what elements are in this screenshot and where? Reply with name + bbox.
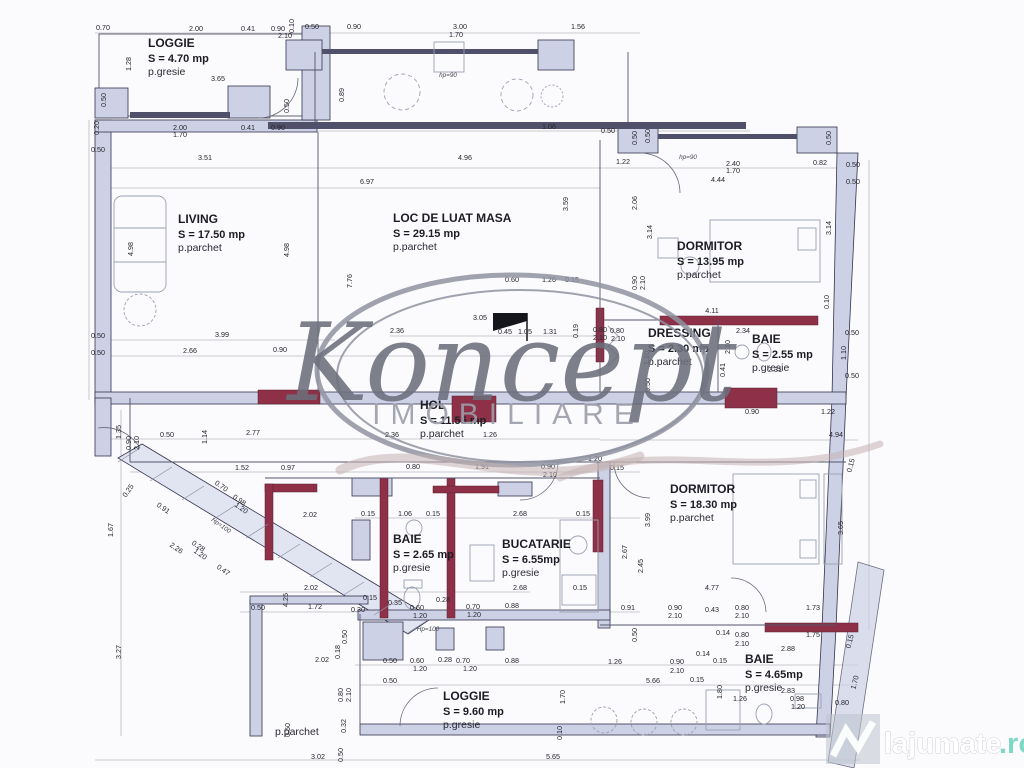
dimension-label: 0.80: [835, 698, 849, 707]
dimension-label: 2.10: [735, 611, 749, 620]
room-area-label: S = 4.65mp: [745, 669, 803, 681]
dimension-label: 3.65: [211, 74, 225, 83]
dimension-label: 0.50: [630, 628, 639, 642]
room-floor-label: p.gresie: [745, 682, 783, 694]
room-floor-label: p.parchet: [677, 269, 721, 281]
dimension-label: 1.26: [608, 657, 622, 666]
dimension-label: 0.50: [630, 131, 639, 145]
sofa: [114, 196, 166, 292]
terrace-table: [501, 79, 533, 111]
agency-watermark: Koncept IMOBILIARE: [285, 275, 880, 478]
dimension-label: 0.70: [96, 23, 110, 32]
dimension-label: 0.30: [351, 605, 365, 614]
dimension-label: 7.76: [345, 274, 354, 288]
dimension-label: 0.90: [271, 123, 285, 132]
dimension-label: 2.67: [620, 545, 629, 559]
dimension-label: 0.50: [383, 676, 397, 685]
dimension-label: 3.51: [198, 153, 212, 162]
dimension-label: 0.41: [241, 123, 255, 132]
dimension-label: 0.50: [643, 129, 652, 143]
dimension-label: 1.72: [308, 602, 322, 611]
dimension-label: 0.80: [406, 462, 420, 471]
sink: [735, 345, 749, 359]
dimension-label: hp=90: [439, 72, 457, 79]
dimension-label: 2.68: [513, 583, 527, 592]
room-area-label: S = 6.55mp: [502, 554, 560, 566]
dimension-label: 1.35: [114, 425, 123, 439]
room-area-label: S = 2.55 mp: [752, 349, 813, 361]
dimension-label: 0.50: [846, 177, 860, 186]
dimension-label: 4.44: [711, 175, 725, 184]
room-floor-label: p.gresie: [443, 719, 481, 731]
dimension-label: 2.10: [132, 436, 141, 450]
floorplan-svg: 0.702.000.410.902.100.100.500.903.001.70…: [0, 0, 1024, 768]
dimension-label: 0.28: [438, 655, 452, 664]
room-area-label: S = 29.15 mp: [393, 228, 460, 240]
dimension-label: 1.20: [463, 664, 477, 673]
plant: [124, 294, 156, 326]
dimension-label: 1.28: [124, 57, 133, 71]
dimension-label: 2.10: [670, 666, 684, 675]
dimension-label: 2.88: [781, 644, 795, 653]
dimension-label: 0.50: [160, 430, 174, 439]
dimension-label: 4.25: [281, 593, 290, 607]
dimension-label: 3.65: [836, 521, 845, 535]
dimension-label: 0.50: [282, 99, 291, 113]
dimension-label: 1.20: [413, 611, 427, 620]
dimension-label: 3.14: [645, 225, 654, 239]
dimension-label: 0.91: [155, 500, 172, 515]
room-floor-label: p.parchet: [178, 242, 222, 254]
toilet: [756, 704, 772, 724]
dimension-label: 0.15: [713, 656, 727, 665]
dimension-label: 5.66: [646, 676, 660, 685]
dimension-label: 0.50: [340, 630, 349, 644]
dimension-label: 1.52: [235, 463, 249, 472]
dimension-label: 0.10: [555, 726, 564, 740]
dimension-label: 2.66: [183, 346, 197, 355]
dimension-label: 1.70: [449, 30, 463, 39]
dimension-label: 1.22: [616, 157, 630, 166]
dimension-label: 2.00: [189, 24, 203, 33]
dimension-label: 0.15: [690, 675, 704, 684]
dimension-label: 3.02: [311, 752, 325, 761]
dimension-label: 0.15: [426, 509, 440, 518]
kitchen-counter: [560, 520, 598, 612]
dimension-label: 0.88: [505, 656, 519, 665]
dimension-label: 0.50: [91, 145, 105, 154]
dimension-label: 1.75: [806, 630, 820, 639]
dimension-label: 0.41: [241, 24, 255, 33]
dimension-label: 3.99: [215, 330, 229, 339]
site-tld-text: .ro: [999, 728, 1024, 760]
room-area-label: S = 9.60 mp: [443, 706, 504, 718]
dimension-label: 0.90: [670, 657, 684, 666]
dimension-label: 1.70: [558, 690, 567, 704]
dimension-label: 1.73: [806, 603, 820, 612]
dimension-label: 0.15: [361, 509, 375, 518]
plant: [541, 85, 563, 107]
dimension-label: 2.10: [668, 611, 682, 620]
dimension-label: 4.96: [458, 153, 472, 162]
room-area-label: S = 17.50 mp: [178, 229, 245, 241]
dimension-label: 1.14: [200, 430, 209, 444]
dimension-label: 2.26: [168, 540, 185, 555]
room-name-label: LOGGIE: [443, 689, 490, 703]
dimension-label: 0.15: [363, 593, 377, 602]
dimension-label: 0.32: [339, 719, 348, 733]
dimension-label: 0.89: [337, 88, 346, 102]
dimension-label: 0.15: [576, 509, 590, 518]
dimension-label: 1.70: [726, 166, 740, 175]
dimension-label: 0.50: [845, 328, 859, 337]
dimension-label: 0.10: [287, 19, 296, 33]
dimension-label: Hp=100: [417, 626, 440, 633]
room-name-label: BAIE: [745, 652, 774, 666]
room-area-label: S = 18.30 mp: [670, 499, 737, 511]
dimension-label: 1.70: [173, 130, 187, 139]
site-name-text: lajumate: [884, 728, 1002, 760]
room-area-label: S = 4.70 mp: [148, 53, 209, 65]
floor-plan-scan: 0.702.000.410.902.100.100.500.903.001.70…: [0, 0, 1024, 768]
dimension-label: 0.50: [336, 748, 345, 762]
dimension-label: 1.20: [413, 664, 427, 673]
dimension-label: 0.15: [844, 457, 856, 473]
dimension-label: 0.15: [573, 583, 587, 592]
dimension-label: 4.77: [705, 583, 719, 592]
table: [434, 42, 464, 72]
dimension-label: 4.98: [282, 243, 291, 257]
dimension-label: 2.02: [315, 655, 329, 664]
dimension-label: 3.14: [824, 221, 833, 235]
dimension-label: 1.80: [715, 685, 724, 699]
dimension-label: 4.94: [829, 430, 843, 439]
room-name-label: LOGGIE: [148, 36, 195, 50]
room-name-label: DORMITOR: [677, 239, 742, 253]
dimension-label: 0.90: [273, 345, 287, 354]
dimension-label: 0.50: [305, 22, 319, 31]
dimension-label: 0.35: [388, 598, 402, 607]
dimension-label: 2.10: [638, 276, 647, 290]
dimension-label: 0.90: [347, 22, 361, 31]
dimension-label: 0.10: [822, 295, 831, 309]
dimension-label: 0.50: [99, 93, 108, 107]
dimension-label: 0.14: [696, 649, 710, 658]
dimension-label: 1.22: [821, 407, 835, 416]
dimension-label: 0.20: [92, 121, 101, 135]
dimension-label: hp=90: [679, 154, 697, 161]
dimension-label: 0.50: [251, 603, 265, 612]
dimension-label: 1.67: [106, 523, 115, 537]
room-floor-label: p.gresie: [752, 362, 790, 374]
dimension-label: 1.10: [839, 346, 848, 360]
room-floor-label: p.parchet: [670, 512, 714, 524]
dimension-label: 0.14: [716, 628, 730, 637]
room-floor-label: p.parchet: [275, 726, 319, 738]
dimension-label: 2.34: [736, 326, 750, 335]
dimension-label: 0.88: [505, 601, 519, 610]
dimension-label: 3.99: [643, 513, 652, 527]
loggia-outline: [99, 34, 307, 116]
dimension-label: 2.10: [735, 639, 749, 648]
dimension-label: 1.56: [571, 22, 585, 31]
dimension-label: 2.77: [246, 428, 260, 437]
dimension-label: 0.25: [120, 482, 135, 499]
dimension-label: 0.50: [383, 656, 397, 665]
room-name-label: BAIE: [752, 332, 781, 346]
dimension-label: 0.50: [824, 131, 833, 145]
dimension-label: 0.80: [735, 630, 749, 639]
dimension-label: 2.68: [513, 509, 527, 518]
site-watermark: lajumate .ro: [826, 714, 1024, 764]
dimension-label: 0.50: [601, 126, 615, 135]
dimension-label: 5.65: [546, 752, 560, 761]
dimension-label: 0.28: [436, 595, 450, 604]
dimension-label: 2.02: [304, 583, 318, 592]
room-name-label: DORMITOR: [670, 482, 735, 496]
dimension-label: 2.45: [636, 559, 645, 573]
dimension-label: 0.50: [91, 348, 105, 357]
dimension-label: 0.97: [281, 463, 295, 472]
dimension-label: 2.10: [344, 688, 353, 702]
room-name-label: BUCATARIE: [502, 537, 571, 551]
room-floor-label: p.gresie: [393, 562, 431, 574]
room-floor-label: p.parchet: [393, 241, 437, 253]
dimension-label: 0.90: [745, 407, 759, 416]
dimension-label: 6.97: [360, 177, 374, 186]
room-name-label: LOC DE LUAT MASA: [393, 211, 512, 225]
room-floor-label: p.gresie: [502, 567, 540, 579]
fridge: [470, 545, 494, 581]
terrace-table: [384, 74, 420, 110]
dimension-label: 0.82: [813, 158, 827, 167]
sink: [569, 536, 587, 554]
dimension-label: 1.26: [733, 694, 747, 703]
dimension-label: 0.50: [846, 160, 860, 169]
dimension-label: 3.59: [561, 197, 570, 211]
dimension-label: 2.06: [630, 196, 639, 210]
watermark-subtitle-text: IMOBILIARE: [372, 398, 644, 431]
dimension-label: 1.06: [542, 122, 556, 131]
dimension-label: 3.27: [114, 645, 123, 659]
room-area-label: S = 13.95 mp: [677, 256, 744, 268]
dimension-label: 0.50: [845, 371, 859, 380]
dimension-label: 0.47: [215, 562, 232, 577]
room-floor-label: p.gresie: [148, 66, 186, 78]
dimension-label: 1.06: [398, 509, 412, 518]
dimension-label: 0.91: [621, 603, 635, 612]
dimension-label: 1.20: [791, 702, 805, 711]
dimension-label: 0.43: [705, 605, 719, 614]
dimension-label: 2.02: [303, 510, 317, 519]
dimension-label: 0.18: [333, 645, 342, 659]
dimension-label: 1.20: [467, 610, 481, 619]
bed: [733, 474, 819, 564]
room-name-label: BAIE: [393, 532, 422, 546]
dimension-label: 1.26: [483, 430, 497, 439]
dimension-label: 0.50: [91, 331, 105, 340]
dimension-label: 4.98: [126, 242, 135, 256]
dimension-label: 1.20: [192, 546, 209, 561]
room-name-label: LIVING: [178, 212, 218, 226]
room-area-label: S = 2.65 mp: [393, 549, 454, 561]
